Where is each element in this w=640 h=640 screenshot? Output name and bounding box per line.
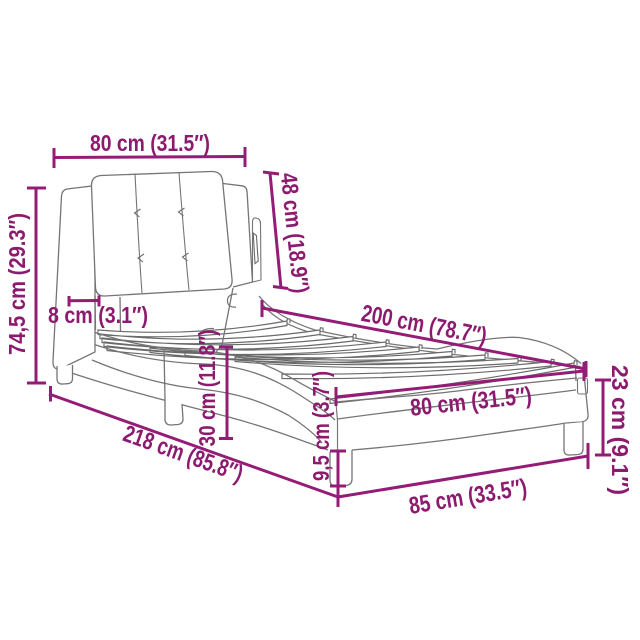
svg-text:30 cm (11.8″): 30 cm (11.8″) (194, 330, 220, 447)
svg-text:9,5 cm (3.7″): 9,5 cm (3.7″) (308, 371, 334, 481)
svg-text:80 cm (31.5″): 80 cm (31.5″) (90, 130, 210, 156)
svg-text:8 cm (3.1″): 8 cm (3.1″) (48, 302, 148, 328)
svg-text:23 cm (9.1″): 23 cm (9.1″) (607, 365, 633, 495)
svg-text:74,5 cm (29.3″): 74,5 cm (29.3″) (4, 213, 30, 355)
